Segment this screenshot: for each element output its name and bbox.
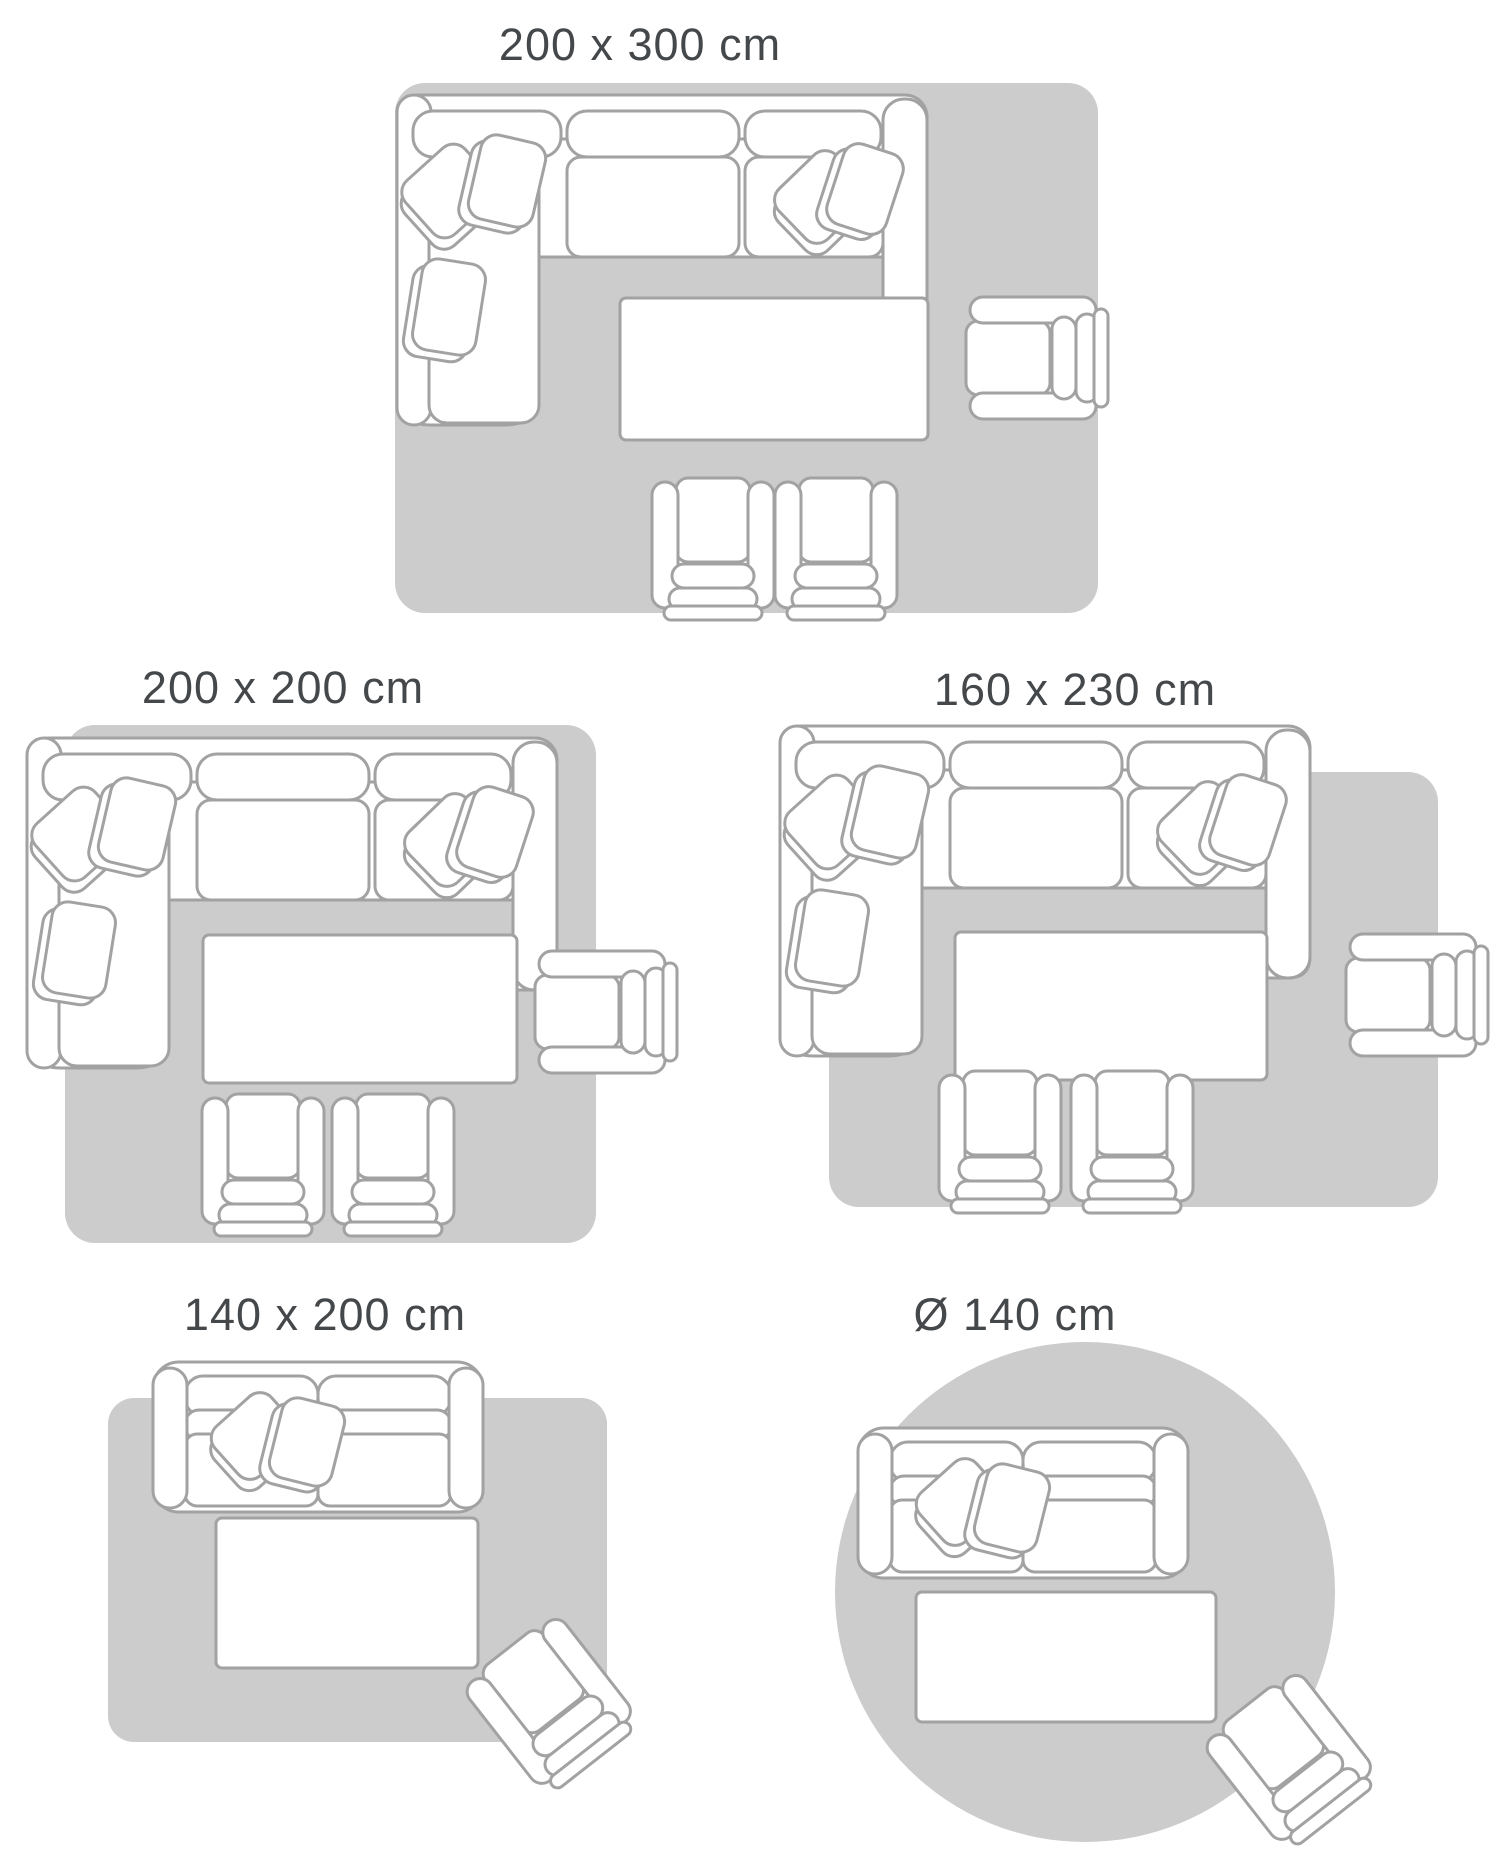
armchair [1071, 1071, 1193, 1213]
armchair [332, 1094, 454, 1236]
armchair [775, 478, 897, 620]
size-label-circle-140: Ø 140 cm [913, 1292, 1116, 1337]
size-guide-illustration [0, 0, 1500, 1875]
panel-140x200 [108, 1362, 643, 1798]
rug-size-guide: 200 x 300 cm 200 x 200 cm 160 x 230 cm 1… [0, 0, 1500, 1875]
side-armchair [1346, 934, 1488, 1056]
loveseat-sofa [153, 1362, 483, 1512]
side-armchair [966, 297, 1108, 419]
size-label-140x200: 140 x 200 cm [184, 1292, 466, 1337]
panel-200x200 [19, 725, 677, 1243]
armchair [202, 1094, 324, 1236]
panel-200x300 [389, 83, 1108, 620]
panel-circle-140 [835, 1342, 1383, 1854]
size-label-200x200: 200 x 200 cm [142, 665, 424, 710]
coffee-table [216, 1518, 478, 1668]
coffee-table [916, 1592, 1216, 1722]
loveseat-sofa [858, 1428, 1188, 1578]
coffee-table [203, 935, 517, 1083]
side-armchair [535, 951, 677, 1073]
coffee-table [955, 932, 1267, 1080]
size-label-200x300: 200 x 300 cm [499, 22, 781, 67]
armchair [652, 478, 774, 620]
coffee-table [620, 298, 928, 440]
size-label-160x230: 160 x 230 cm [934, 667, 1216, 712]
armchair [939, 1071, 1061, 1213]
panel-160x230 [772, 726, 1488, 1213]
